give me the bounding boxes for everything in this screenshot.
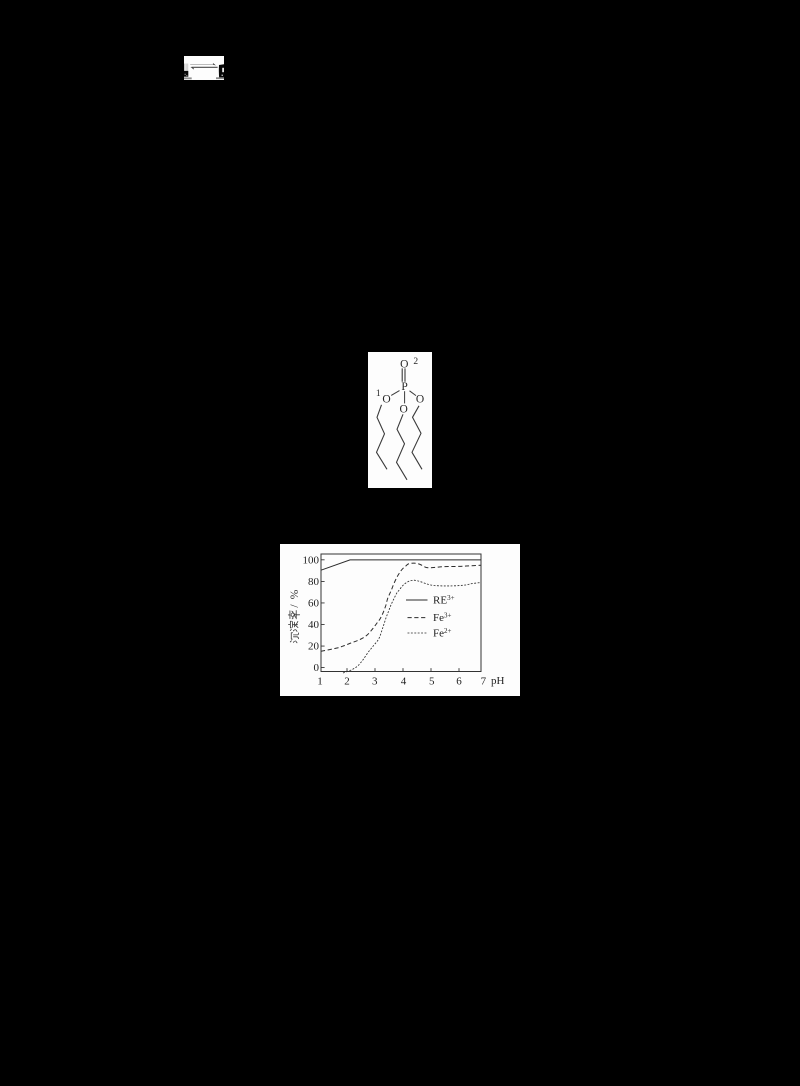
svg-text:40: 40 (308, 619, 320, 631)
svg-text:O: O (400, 358, 408, 370)
svg-text:60: 60 (308, 598, 320, 610)
svg-text:4: 4 (401, 675, 407, 687)
svg-text:O: O (382, 393, 390, 405)
svg-text:%: % (289, 589, 301, 599)
svg-text:pH: pH (491, 675, 505, 687)
svg-text:1: 1 (317, 675, 323, 687)
svg-text:7: 7 (481, 675, 487, 687)
svg-text:80: 80 (308, 576, 320, 588)
svg-text:O: O (399, 403, 407, 415)
svg-text:Fe2+: Fe2+ (433, 627, 452, 640)
svg-text:2: 2 (413, 357, 418, 367)
svg-text:O: O (416, 393, 424, 405)
svg-text:2: 2 (344, 675, 350, 687)
svg-text:3: 3 (372, 675, 378, 687)
svg-text:0: 0 (314, 662, 320, 674)
svg-text:Fe3+: Fe3+ (433, 612, 452, 625)
svg-text:/: / (289, 604, 301, 608)
svg-text:20: 20 (308, 641, 320, 653)
svg-text:RE3+: RE3+ (433, 594, 455, 607)
svg-text:6: 6 (456, 675, 462, 687)
svg-text:5: 5 (429, 675, 435, 687)
svg-text:1: 1 (376, 389, 381, 399)
svg-text:100: 100 (303, 554, 320, 566)
